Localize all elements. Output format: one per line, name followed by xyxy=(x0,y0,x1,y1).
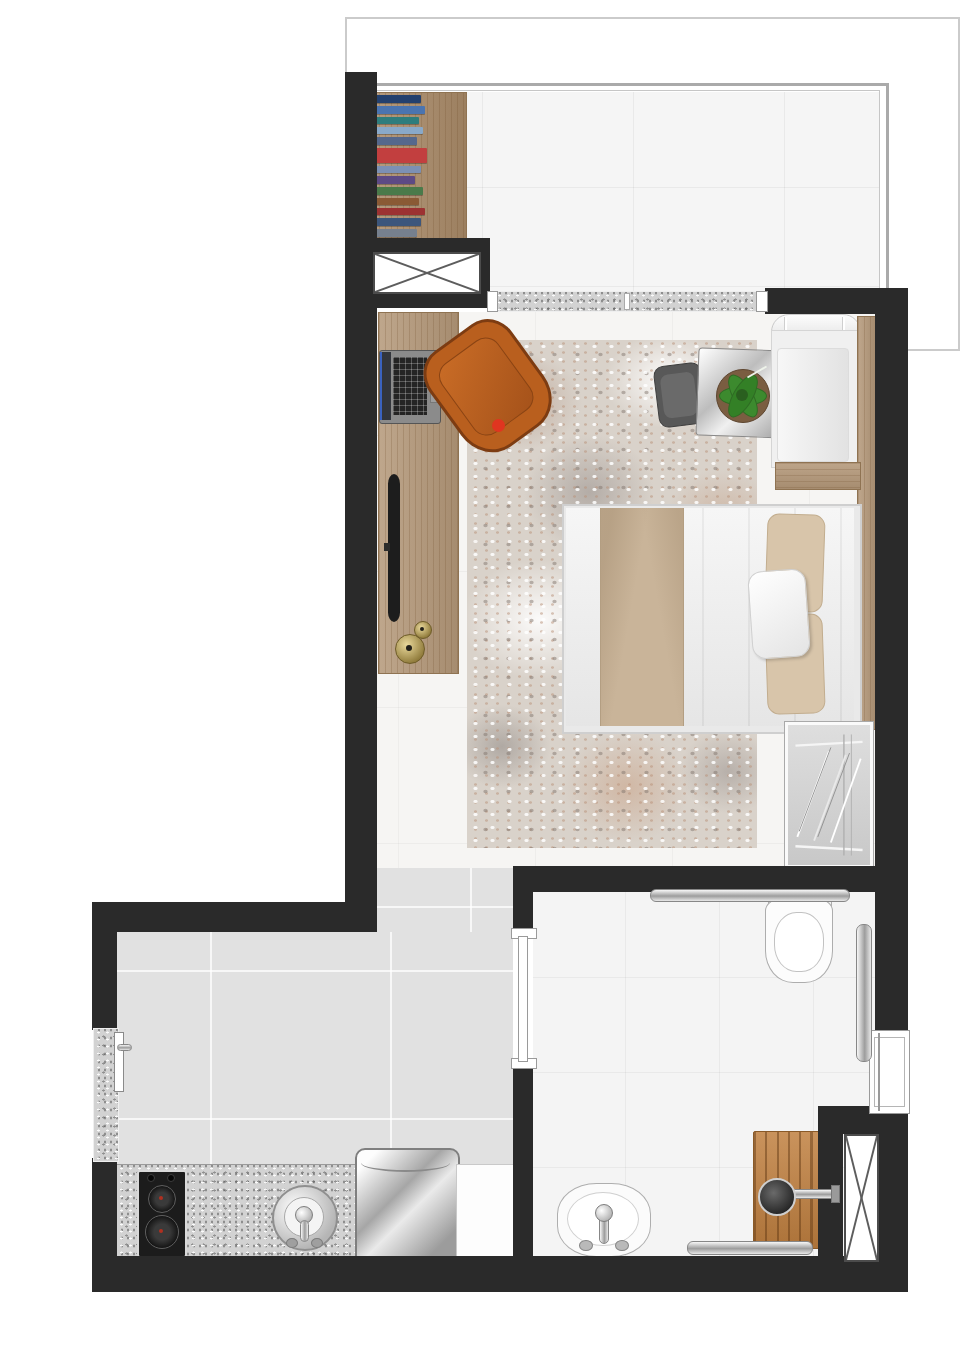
washing-machine xyxy=(355,1148,460,1262)
laptop-keyboard xyxy=(393,357,427,415)
wall-kitchen-left-lower xyxy=(92,1158,117,1258)
sofa-wood-base xyxy=(775,462,861,490)
book-spine xyxy=(375,106,425,114)
speaker-large-dot xyxy=(406,645,412,651)
entrance-door xyxy=(114,1032,124,1092)
book-spine xyxy=(375,117,419,125)
wall-bathroom-left-lower xyxy=(513,1062,533,1258)
shower-glass-panel xyxy=(856,924,872,1062)
book-spine xyxy=(375,95,421,103)
book-spine xyxy=(375,198,419,205)
entrance-door-handle xyxy=(117,1044,132,1051)
cooktop-knob xyxy=(167,1174,175,1182)
base-cabinet xyxy=(456,1164,516,1258)
book-spine xyxy=(375,127,423,134)
bathroom-sliding-door xyxy=(518,936,528,1062)
cooktop xyxy=(137,1170,187,1258)
book-spine xyxy=(375,137,417,145)
wall-right-lower xyxy=(875,1108,908,1258)
speaker-small-dot xyxy=(420,627,424,631)
book-spine xyxy=(375,148,427,163)
ventilation-shaft-top xyxy=(373,252,481,294)
bed-runner xyxy=(600,508,684,726)
bed-pillow-white xyxy=(747,568,811,660)
kitchen-faucet-handle xyxy=(286,1238,298,1248)
wall-right-upper xyxy=(875,288,908,1032)
wall-kitchen-top xyxy=(92,902,377,932)
ventilation-shaft-bath xyxy=(844,1134,879,1262)
basin-faucet-head xyxy=(595,1204,613,1222)
laptop-screen xyxy=(380,352,391,420)
shower-arm-mount xyxy=(831,1185,840,1203)
shower-head xyxy=(758,1178,796,1216)
wall-shower-block-side xyxy=(818,1106,843,1258)
book-spine xyxy=(375,187,423,195)
kitchen-faucet-handle xyxy=(311,1238,323,1248)
balcony-door-jamb-left xyxy=(487,291,498,312)
tv-stand-nub xyxy=(384,543,390,551)
bookshelf xyxy=(372,92,467,240)
book-spine xyxy=(375,166,421,174)
wall-kitchen-left-upper xyxy=(92,902,117,1030)
basin-handle xyxy=(579,1240,593,1251)
balcony-door-mullion xyxy=(624,293,630,310)
cooktop-knob xyxy=(147,1174,155,1182)
towel-rail-top xyxy=(650,889,850,902)
toilet-seat xyxy=(774,912,824,972)
wardrobe xyxy=(785,722,873,868)
book-spine xyxy=(375,208,425,216)
sofa-cushion xyxy=(777,348,849,462)
potted-plant xyxy=(716,369,768,421)
books-stack xyxy=(375,93,429,237)
kitchen-faucet-stem xyxy=(300,1220,309,1242)
wall-bottom xyxy=(92,1256,908,1292)
hallway-floor xyxy=(377,868,513,934)
balcony-door-jamb-right xyxy=(756,291,768,312)
bathroom-window xyxy=(869,1030,910,1114)
book-spine xyxy=(375,218,421,226)
wall-left-living xyxy=(345,72,377,932)
armchair-cushion-dot xyxy=(492,419,505,432)
basin-handle xyxy=(615,1240,629,1251)
book-spine xyxy=(375,176,415,184)
book-spine xyxy=(375,229,417,237)
floor-plan-canvas xyxy=(0,0,980,1346)
towel-rail-bottom xyxy=(687,1241,813,1255)
side-chair-seat xyxy=(659,371,698,419)
